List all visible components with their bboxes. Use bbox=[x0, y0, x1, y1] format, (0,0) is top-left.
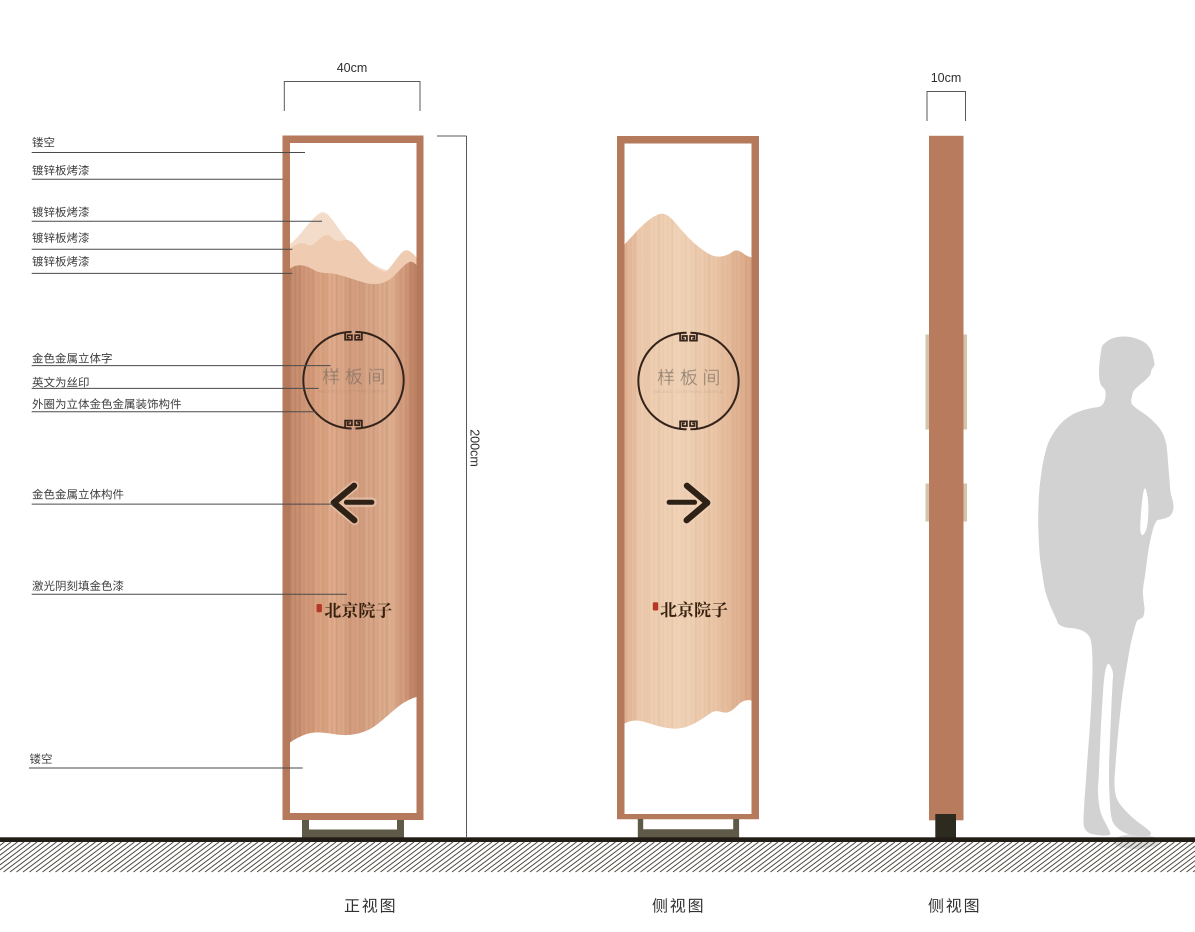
svg-text:BEIJING COURTYARD SAMPLE: BEIJING COURTYARD SAMPLE bbox=[654, 389, 723, 394]
svg-text:BEIJING COURTYARD SAMPLE: BEIJING COURTYARD SAMPLE bbox=[319, 388, 388, 393]
svg-text:200cm: 200cm bbox=[468, 429, 482, 467]
svg-text:10cm: 10cm bbox=[931, 71, 962, 85]
svg-text:40cm: 40cm bbox=[337, 61, 368, 75]
